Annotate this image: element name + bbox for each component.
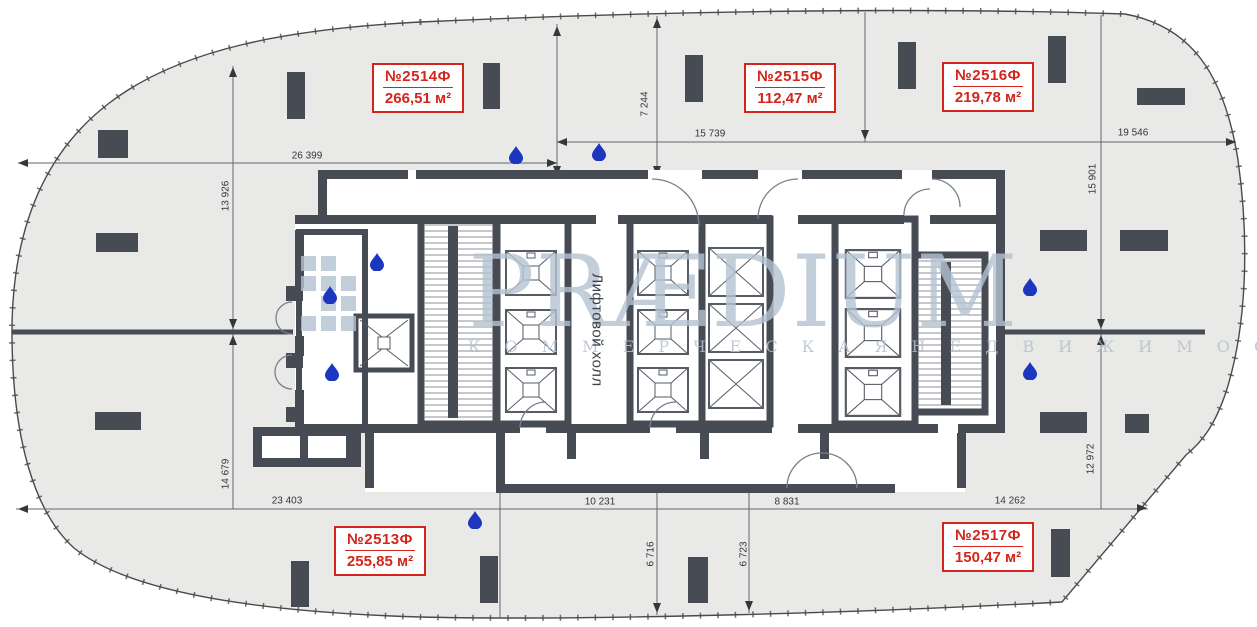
floor-plan: PRÆDIUM К О М М Е Р Ч Е С К А Я Н Е Д В … (0, 0, 1257, 627)
dimension-label: 10 231 (585, 497, 616, 508)
elevator-bank-d (846, 250, 900, 416)
dimension-label: 7 244 (640, 91, 651, 116)
unit-number: №2515Ф (755, 68, 825, 88)
dimension-label: 14 679 (221, 459, 232, 490)
unit-label-2517: №2517Ф 150,47 м² (942, 522, 1034, 572)
dimension-label: 6 716 (646, 541, 657, 566)
unit-label-2513: №2513Ф 255,85 м² (334, 526, 426, 576)
unit-area: 219,78 м² (953, 87, 1023, 106)
elevator-bank-service (709, 248, 763, 408)
water-drop-icon (509, 146, 523, 164)
dimension-label: 15 739 (695, 129, 726, 140)
unit-area: 150,47 м² (953, 547, 1023, 566)
water-drop-icon (1023, 362, 1037, 380)
water-drop-icon (323, 286, 337, 304)
dimension-label: 14 262 (995, 496, 1026, 507)
floor-plan-drawing (0, 0, 1257, 627)
dimension-label: 19 546 (1118, 128, 1149, 139)
elevator-bank-a (506, 251, 556, 412)
dimension-label: 13 926 (221, 181, 232, 212)
unit-label-2515: №2515Ф 112,47 м² (744, 63, 836, 113)
water-drop-icon (592, 143, 606, 161)
stairwell-right (918, 258, 982, 409)
unit-area: 266,51 м² (383, 88, 453, 107)
unit-number: №2517Ф (953, 527, 1023, 547)
elevator-hall-label: Лифтовой холл (589, 273, 606, 386)
dimension-label: 6 723 (739, 541, 750, 566)
unit-label-2514: №2514Ф 266,51 м² (372, 63, 464, 113)
dimension-label: 12 972 (1086, 444, 1097, 475)
elevator-bank-b (638, 251, 688, 412)
unit-area: 255,85 м² (345, 551, 415, 570)
unit-area: 112,47 м² (755, 88, 825, 107)
stairwell-left (424, 222, 493, 421)
water-drop-icon (370, 253, 384, 271)
dimension-label: 8 831 (774, 497, 799, 508)
unit-number: №2514Ф (383, 68, 453, 88)
dimension-label: 23 403 (272, 496, 303, 507)
unit-number: №2516Ф (953, 67, 1023, 87)
unit-number: №2513Ф (345, 531, 415, 551)
dimension-label: 15 901 (1088, 164, 1099, 195)
unit-label-2516: №2516Ф 219,78 м² (942, 62, 1034, 112)
water-drop-icon (468, 511, 482, 529)
dimension-label: 26 399 (292, 151, 323, 162)
water-drop-icon (325, 363, 339, 381)
water-drop-icon (1023, 278, 1037, 296)
